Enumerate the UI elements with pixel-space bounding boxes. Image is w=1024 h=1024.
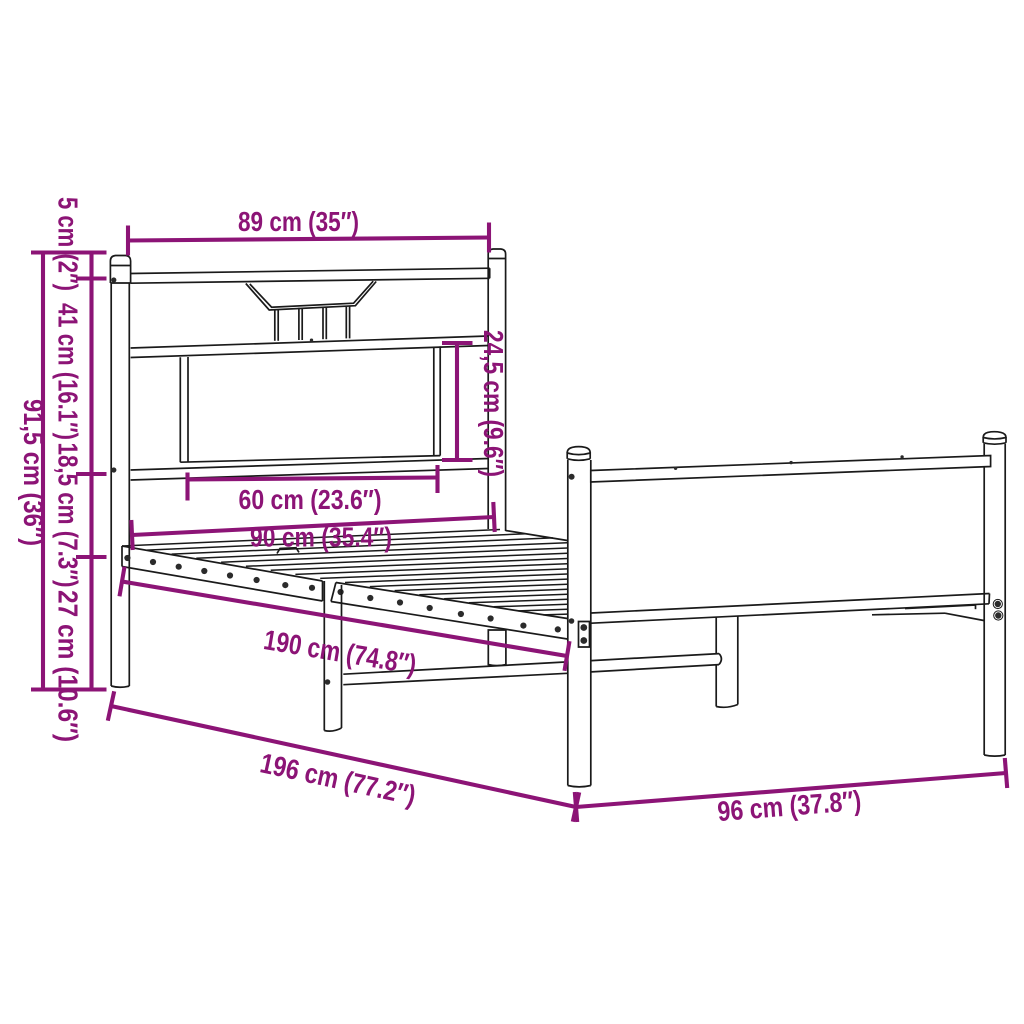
svg-text:190 cm (74.8″): 190 cm (74.8″) [262, 624, 419, 680]
svg-text:89 cm (35″): 89 cm (35″) [238, 206, 359, 237]
svg-text:91,5 cm (36″): 91,5 cm (36″) [18, 399, 49, 546]
svg-text:18,5 cm (7.3″): 18,5 cm (7.3″) [53, 443, 84, 588]
svg-text:90 cm (35.4″): 90 cm (35.4″) [250, 522, 392, 553]
svg-text:5 cm (2″): 5 cm (2″) [53, 197, 84, 291]
svg-text:27 cm (10.6″): 27 cm (10.6″) [53, 590, 84, 742]
svg-text:41 cm (16.1″): 41 cm (16.1″) [53, 303, 84, 440]
svg-text:60 cm (23.6″): 60 cm (23.6″) [239, 484, 382, 515]
svg-text:24,5 cm (9.6″): 24,5 cm (9.6″) [478, 330, 509, 477]
svg-text:96 cm (37.8″): 96 cm (37.8″) [716, 785, 862, 827]
